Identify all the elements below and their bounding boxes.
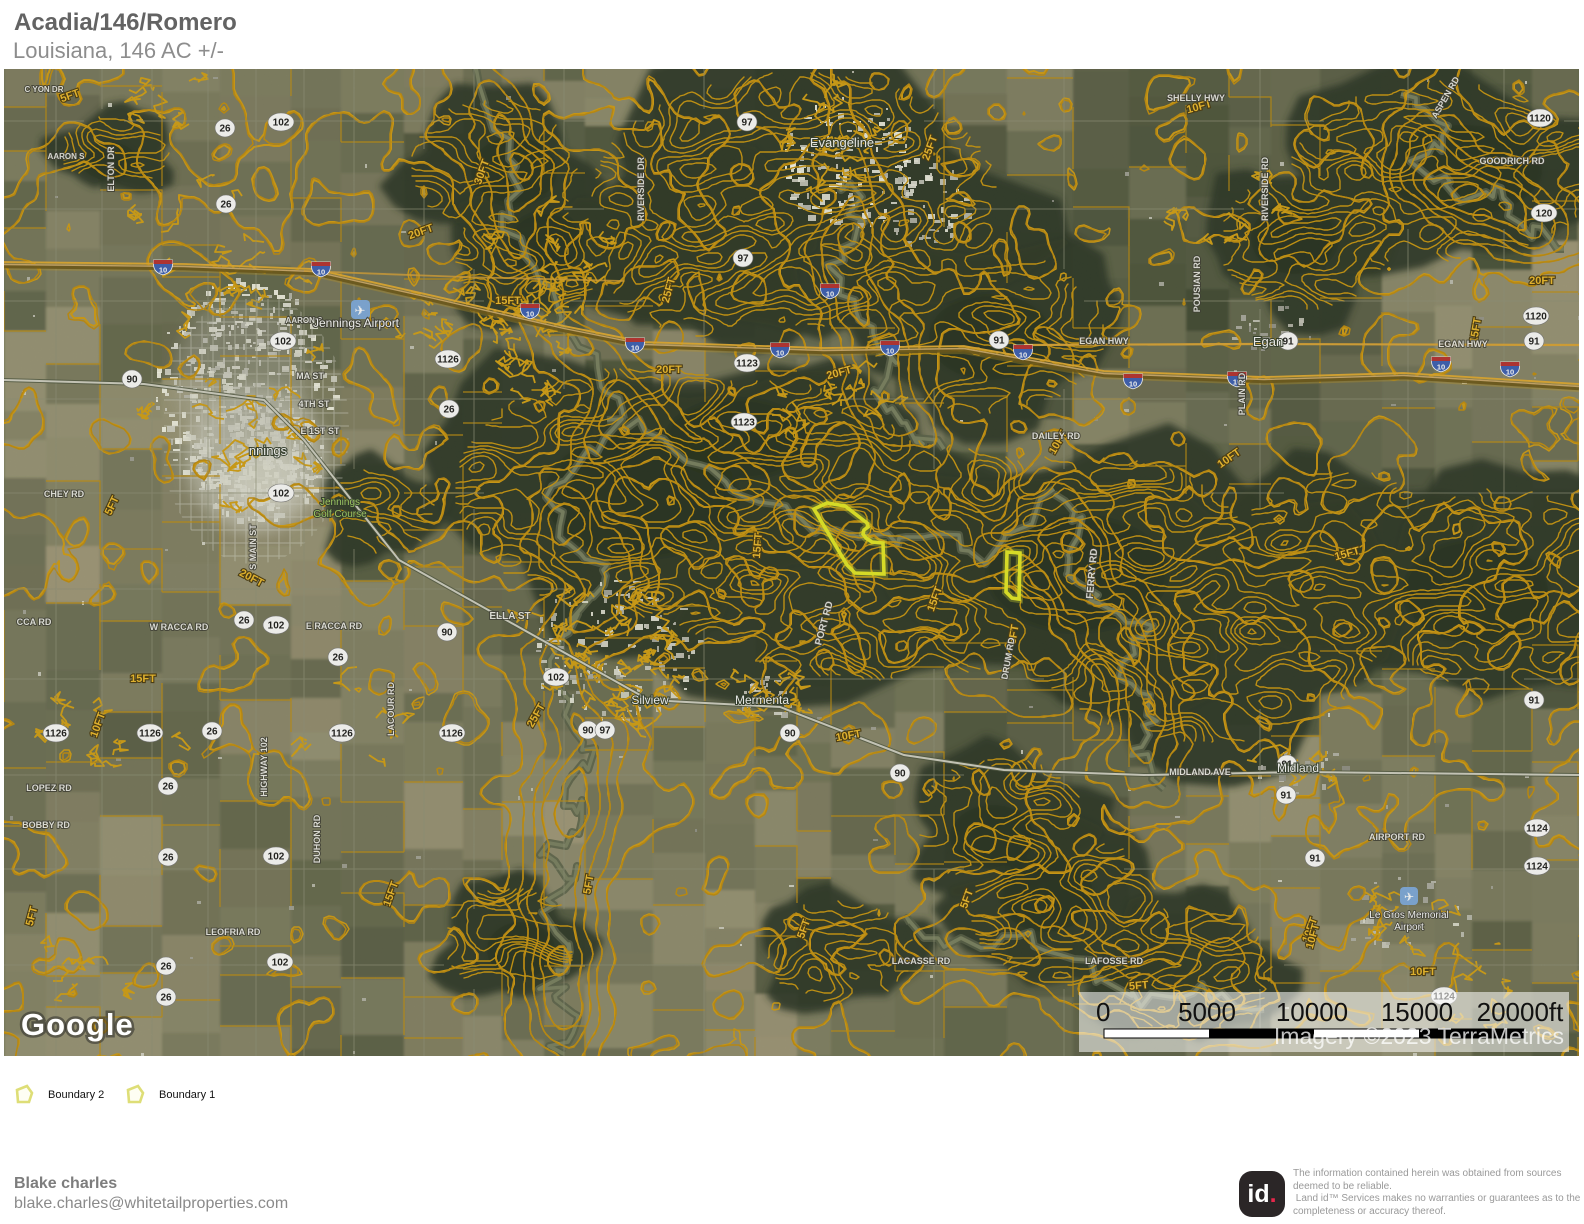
svg-text:Google: Google [21, 1007, 134, 1042]
svg-text:Imagery ©2023 TerraMetrics: Imagery ©2023 TerraMetrics [1274, 1023, 1564, 1049]
svg-text:0: 0 [1096, 997, 1110, 1027]
svg-text:5000: 5000 [1178, 997, 1236, 1027]
